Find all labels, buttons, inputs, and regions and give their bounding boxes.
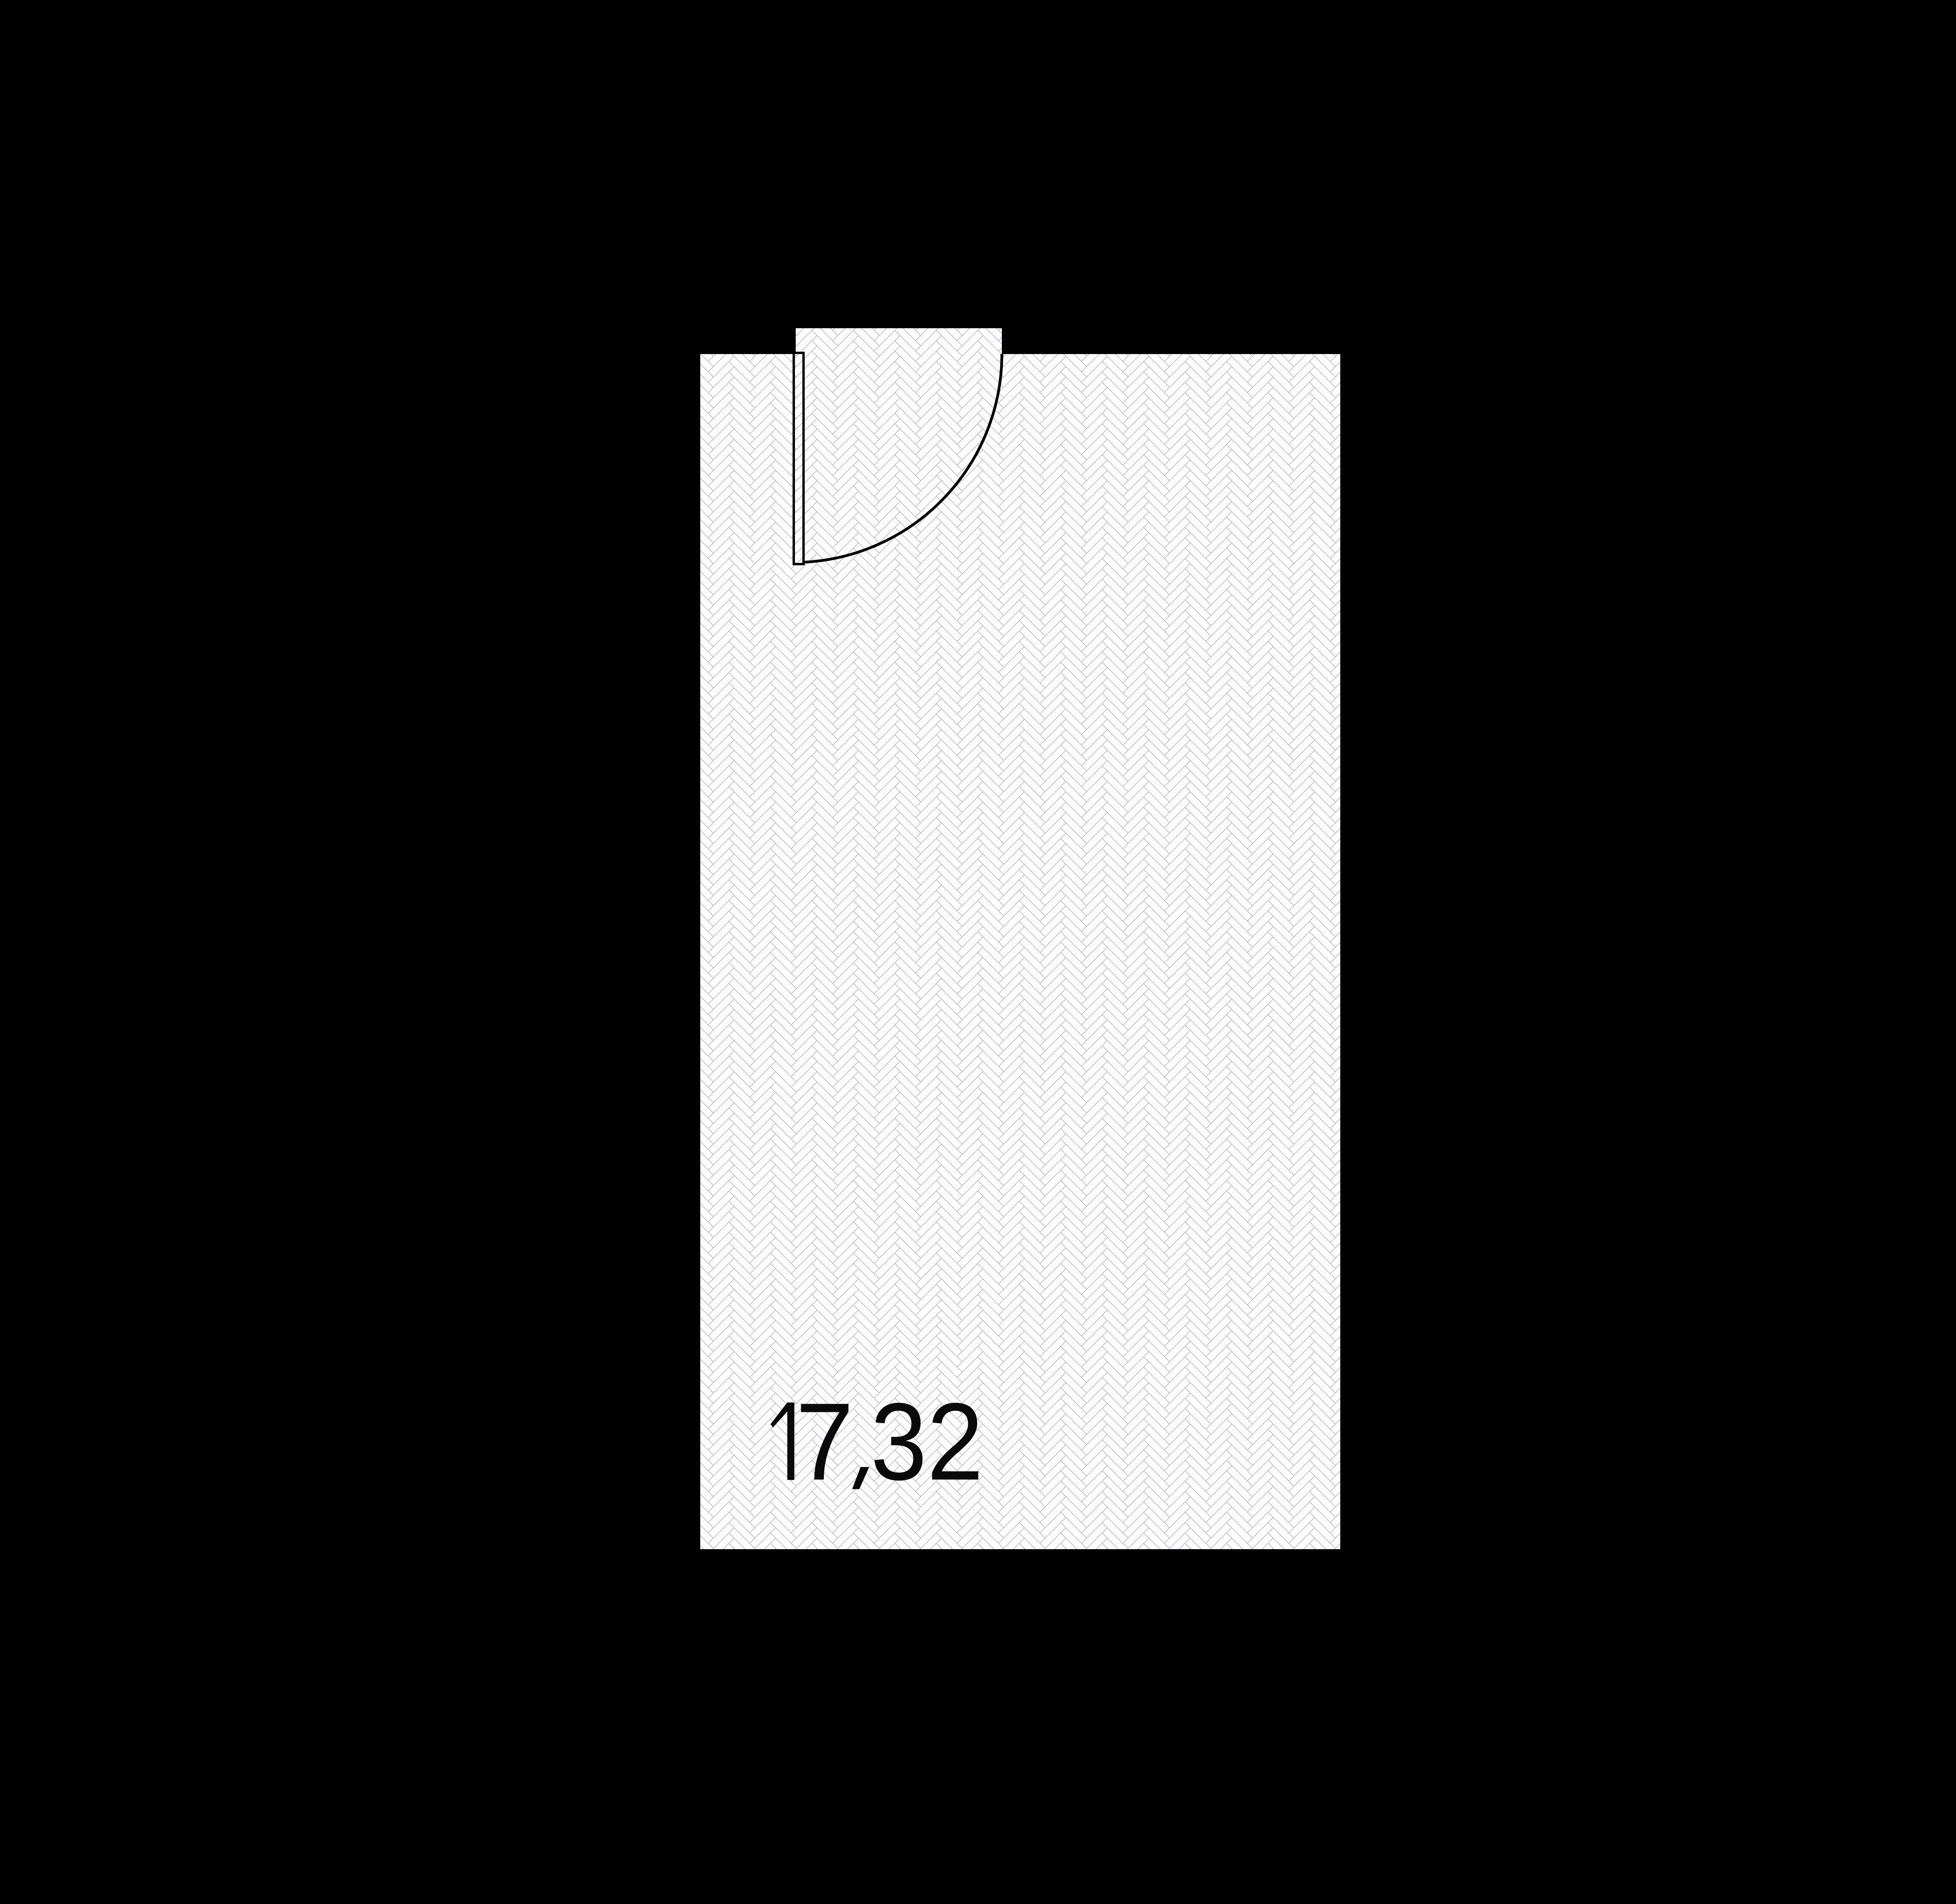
svg-text:32: 32 — [870, 1380, 983, 1503]
svg-text:7: 7 — [796, 1380, 854, 1503]
